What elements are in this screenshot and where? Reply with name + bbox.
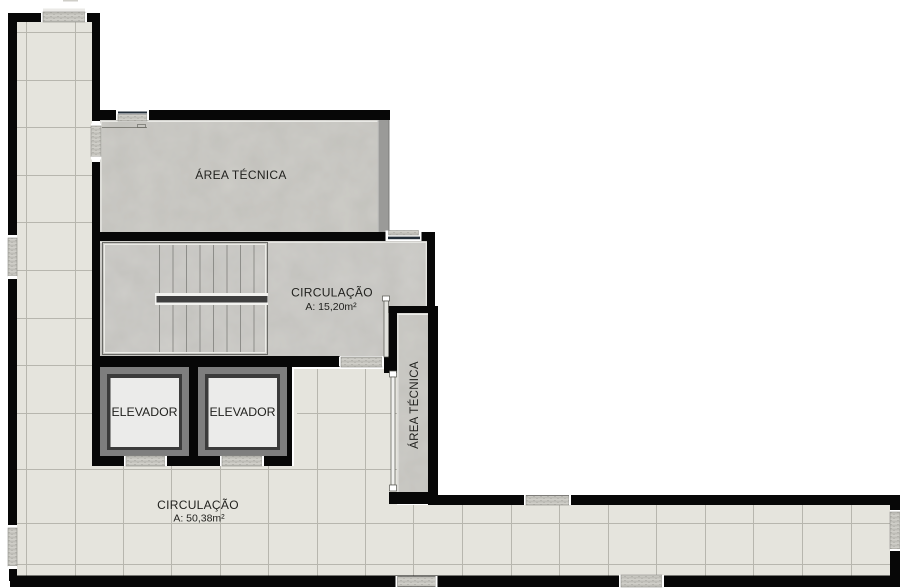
svg-text:CIRCULAÇÃO: CIRCULAÇÃO (291, 286, 373, 300)
svg-text:ÁREA TÉCNICA: ÁREA TÉCNICA (408, 361, 421, 449)
svg-text:ÁREA TÉCNICA: ÁREA TÉCNICA (195, 167, 286, 182)
svg-text:A: 15,20m²: A: 15,20m² (305, 301, 357, 313)
svg-text:A: 50,38m²: A: 50,38m² (173, 513, 225, 525)
svg-text:ELEVADOR: ELEVADOR (209, 405, 275, 419)
svg-text:ELEVADOR: ELEVADOR (111, 405, 177, 419)
svg-text:CIRCULAÇÃO: CIRCULAÇÃO (157, 498, 239, 512)
